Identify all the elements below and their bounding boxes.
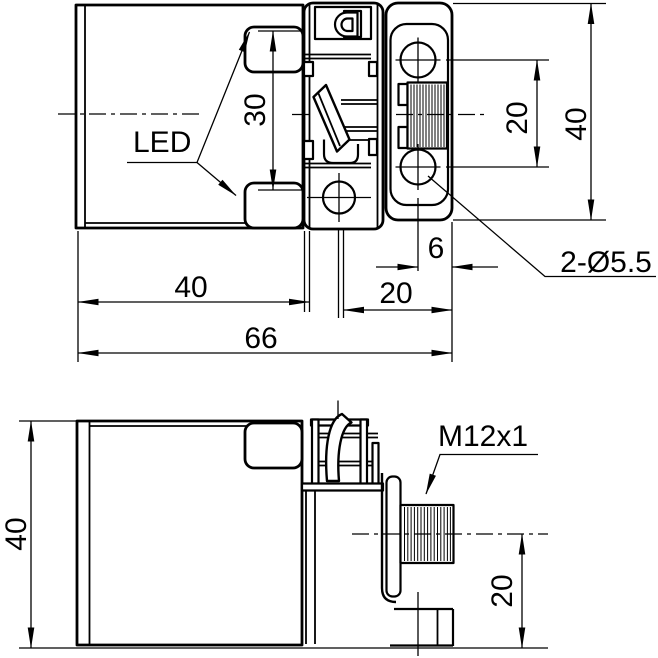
dim-bracket-length: 20 (344, 277, 453, 310)
led-window-side (245, 423, 302, 468)
clamp-post-left (312, 420, 319, 485)
dim-text-20-bottom: 20 (379, 277, 412, 310)
bracket-and-connector-side (352, 473, 548, 656)
module-edge-side (306, 490, 315, 644)
dim-text-40-side: 40 (0, 517, 33, 550)
top-view: LED 30 20 40 2-Ø5.5 (58, 3, 656, 362)
connector-callout: M12x1 (426, 420, 538, 494)
connector-flange-side (387, 477, 401, 597)
connector-label: M12x1 (438, 420, 528, 453)
clamp-post-right (361, 420, 368, 485)
connector-flange-block (399, 84, 408, 105)
dim-text-66: 66 (244, 322, 277, 355)
dim-overall-length: 66 (78, 322, 452, 355)
bracket-foot (394, 609, 453, 646)
mounting-bracket-top (386, 3, 487, 220)
dim-text-20-right: 20 (501, 101, 534, 134)
hinge-knuckle (304, 141, 313, 159)
led-label: LED (133, 126, 191, 159)
dim-text-20-side: 20 (486, 574, 519, 607)
clamp-module-side (302, 401, 383, 491)
connector-flange-block (399, 127, 408, 148)
hinge-knuckle (369, 139, 377, 155)
dim-text-40-right: 40 (560, 107, 593, 140)
dim-hole-edge-offset: 6 (376, 232, 498, 267)
hinge-knuckle (304, 62, 313, 76)
connector-leader (426, 455, 538, 495)
clamp-bars-side (313, 434, 378, 466)
clamp-post-outer (373, 443, 379, 484)
dim-connector-height: 20 (486, 534, 522, 648)
dim-text-40-bottom: 40 (174, 271, 207, 304)
clamp-base-plate (302, 484, 383, 491)
sensor-dimension-drawing: LED 30 20 40 2-Ø5.5 (0, 0, 658, 658)
hinge-knuckle (369, 62, 377, 76)
dim-hole-spacing: 20 (446, 60, 549, 167)
lamp-icon-inner (341, 19, 352, 32)
drawing-canvas: LED 30 20 40 2-Ø5.5 (0, 0, 658, 658)
holes-callout: 2-Ø5.5 (428, 176, 656, 279)
sensor-body-side (77, 421, 315, 645)
clamp-module (292, 3, 383, 229)
holes-callout-text: 2-Ø5.5 (560, 246, 652, 279)
dim-text-30: 30 (239, 93, 272, 126)
side-view: M12x1 40 20 (0, 401, 548, 657)
dim-text-6: 6 (428, 232, 445, 265)
dim-head-length: 40 (78, 271, 310, 304)
led-window-top (245, 27, 303, 72)
